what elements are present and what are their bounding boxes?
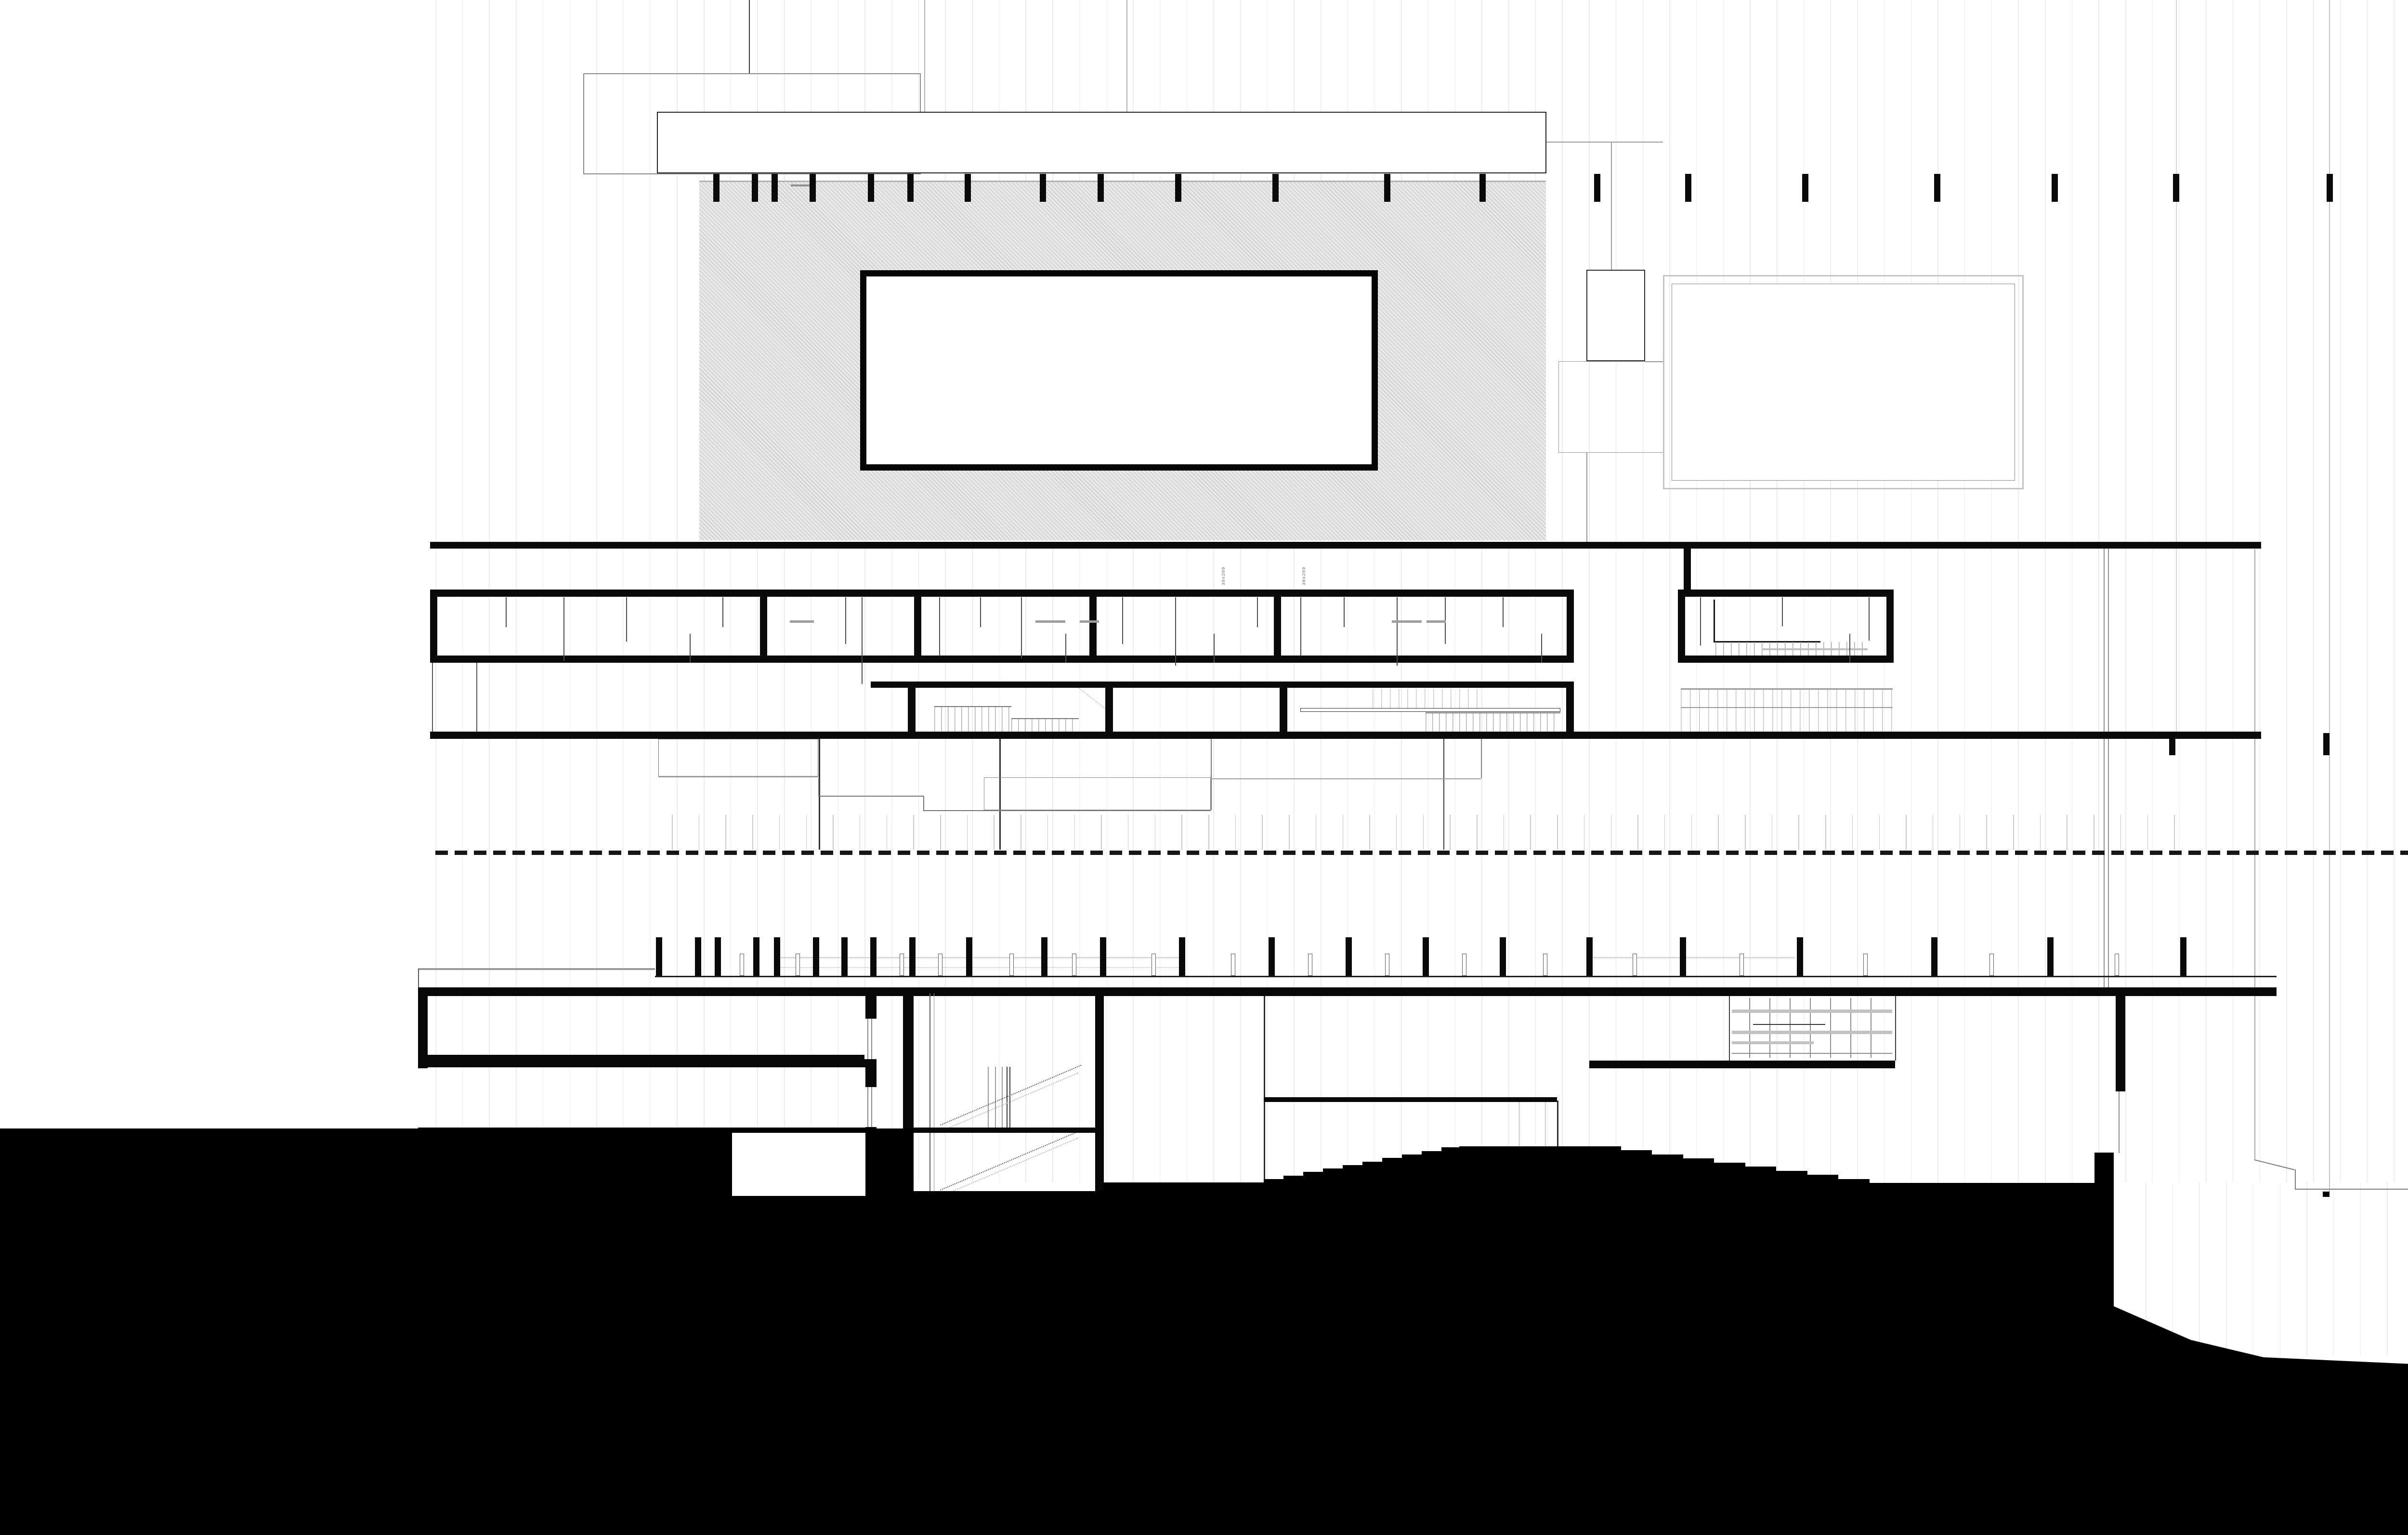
window-mullion <box>740 954 744 976</box>
grid-line <box>1616 0 1617 1182</box>
reference-line <box>2104 549 2105 987</box>
beam-label: 30x200 <box>1302 556 1310 585</box>
underslab-line <box>923 796 924 810</box>
window-mullion <box>938 954 942 976</box>
door-swing-arc <box>1078 688 1105 709</box>
rail-dotted <box>777 967 1182 968</box>
lower-column-tick <box>1100 937 1106 976</box>
shelf-dash <box>1392 620 1422 623</box>
dropline-fringe <box>1933 815 1934 850</box>
dropline-fringe <box>1504 815 1505 850</box>
dropline-fringe <box>1021 815 1021 850</box>
lower-column-tick <box>753 937 759 976</box>
gridroom-mullion <box>1830 998 1831 1058</box>
roof-column-tick <box>1594 174 1600 202</box>
underslab-line <box>923 810 1211 811</box>
window-mullion <box>796 954 800 976</box>
dropline-fringe <box>1530 815 1531 850</box>
bench-bar <box>1300 708 1560 712</box>
ground-mass <box>1104 1182 1264 1535</box>
reference-line <box>1126 0 1127 112</box>
roof-column-tick <box>752 174 758 202</box>
dropline-fringe <box>699 815 700 850</box>
dropline-fringe <box>1611 815 1612 850</box>
roof-column-tick <box>1040 174 1046 202</box>
partition-dropline <box>690 634 691 663</box>
stair-landing <box>908 1128 1095 1133</box>
partition-dropline <box>1175 597 1176 666</box>
dropline-fringe <box>1718 815 1719 850</box>
stair-flight <box>945 1073 1078 1130</box>
band-right-stub-tick <box>2323 733 2329 755</box>
ground-block <box>2094 1153 2114 1535</box>
underslab-line <box>818 777 819 796</box>
underslab-line <box>818 796 923 797</box>
lower-column-tick <box>656 937 662 976</box>
gridroom-mullion <box>1850 998 1851 1058</box>
bay-floor-slab <box>1264 1097 1557 1102</box>
mezz-roof-line <box>871 682 1574 688</box>
lower-column-tick <box>1041 937 1047 976</box>
dropline-fringe <box>833 815 834 850</box>
grid-line <box>2152 0 2153 1182</box>
partition-dropline <box>1503 597 1504 627</box>
mezz-stair-hatch <box>934 706 1011 732</box>
band-right-stub-tick <box>2169 733 2175 755</box>
dropline-fringe <box>752 815 753 850</box>
roof-column-tick <box>2052 174 2058 202</box>
gridroom-mullion <box>1769 998 1770 1058</box>
upper-roof-post <box>1684 549 1691 590</box>
window-mullion <box>900 954 904 976</box>
soil-step-down <box>1621 1150 1652 1535</box>
mezz-wall <box>1566 682 1574 739</box>
dropline-fringe <box>1128 815 1129 850</box>
window-mullion <box>1072 954 1076 976</box>
dropline-fringe <box>1664 815 1665 850</box>
roofplan-step-line <box>749 0 750 73</box>
partition-dropline <box>939 597 940 656</box>
mezz-wall <box>908 682 916 739</box>
dropline-fringe <box>725 815 726 850</box>
grid-line <box>2286 0 2287 1182</box>
lower-column-tick <box>1797 937 1803 976</box>
dropline-fringe <box>779 815 780 850</box>
soil-step-down <box>1838 1179 1870 1535</box>
reference-line <box>924 0 925 112</box>
soil-step-down <box>1714 1163 1745 1535</box>
partition-dropline <box>1541 634 1542 663</box>
partition-dropline <box>1344 597 1345 627</box>
shelf-dash <box>790 620 814 623</box>
grid-line-lower-right <box>2333 1182 2334 1356</box>
door-leaf <box>871 1019 872 1059</box>
upper-wall <box>914 590 921 663</box>
partition-dropline <box>862 597 863 684</box>
connector-line <box>1645 361 1663 362</box>
stairwell-line <box>929 993 930 1191</box>
lower-column-tick <box>715 937 721 976</box>
dropline-fringe <box>672 815 673 850</box>
gridroom-mullion <box>1749 998 1750 1058</box>
dropline-fringe <box>1557 815 1558 850</box>
balustrade <box>995 1067 996 1128</box>
dropline-fringe <box>2174 815 2175 850</box>
dropline-fringe <box>1477 815 1478 850</box>
partition-dropline <box>722 597 723 627</box>
grid-line <box>1991 0 1992 1182</box>
partition-dropline <box>845 597 846 644</box>
lower-column-tick <box>870 937 877 976</box>
soil-step-down <box>1869 1183 1901 1535</box>
window-mullion <box>1740 954 1744 976</box>
dropline-fringe <box>994 815 995 850</box>
roof-column-tick <box>810 174 816 202</box>
grid-line-lower-right <box>2199 1182 2200 1356</box>
dropline-fringe <box>1181 815 1182 850</box>
dropline-fringe <box>806 815 807 850</box>
grid-line-lower-right <box>2387 1182 2388 1356</box>
stair-flight <box>940 1065 1082 1126</box>
dropline-fringe <box>860 815 861 850</box>
soil-step-down <box>1651 1155 1683 1535</box>
balustrade <box>1009 1067 1010 1128</box>
rooftop-unit-small <box>1586 270 1645 361</box>
dropline-fringe <box>1101 815 1102 850</box>
right-wall-thin <box>2119 1091 2120 1153</box>
gridroom-shelf <box>1732 1053 1892 1054</box>
dropline-fringe <box>1852 815 1853 850</box>
soil-step-up <box>1382 1158 1402 1535</box>
lower-column-tick <box>1179 937 1185 976</box>
ground-mass <box>1898 1183 2094 1535</box>
roof-column-tick <box>2327 174 2333 202</box>
mezz-wall <box>1280 682 1287 739</box>
lower-column-tick <box>1423 937 1429 976</box>
lower-column-tick <box>2180 937 2186 976</box>
roof-column-tick <box>907 174 914 202</box>
balustrade <box>1002 1067 1003 1128</box>
lower-column-tick <box>695 937 701 976</box>
mezz-stair-hatch <box>1011 718 1079 732</box>
gridroom-mullion <box>1810 998 1811 1058</box>
upper-roof-slab <box>430 542 2261 549</box>
grid-line-lower-right <box>2172 1182 2173 1356</box>
upper-wall <box>1274 590 1281 663</box>
partition-dropline <box>1700 597 1701 645</box>
roof-column-tick <box>1384 174 1390 202</box>
reference-line <box>2108 549 2109 987</box>
lower-column-tick <box>1269 937 1275 976</box>
grid-line <box>2206 0 2207 1182</box>
datum-dash-row <box>435 851 2408 855</box>
dropline-fringe <box>1235 815 1236 850</box>
grid-line <box>2018 0 2019 1182</box>
door-leaf <box>867 1019 868 1059</box>
lower-roof-conn <box>418 969 419 988</box>
gridroom-slab <box>1589 1061 1895 1068</box>
dropline-fringe <box>1745 815 1746 850</box>
stairwell-line <box>934 993 934 1191</box>
dropline-fringe <box>1047 815 1048 850</box>
gridroom-mullion <box>1871 998 1871 1058</box>
dropline-fringe <box>1825 815 1826 850</box>
dropline-fringe <box>1208 815 1209 850</box>
roof-column-tick <box>1479 174 1486 202</box>
window-mullion <box>1385 954 1389 976</box>
grid-line <box>2313 0 2314 1182</box>
partition-dropline <box>1849 634 1850 663</box>
drawing-layer: 30x20030x200 <box>0 0 2408 1535</box>
partition-dropline <box>1782 597 1783 626</box>
soil-step-down <box>1589 1146 1621 1535</box>
dropline-fringe <box>913 815 914 850</box>
window-mullion <box>1543 954 1547 976</box>
stair-room-wall <box>1886 590 1894 663</box>
door-leaf <box>867 1087 868 1127</box>
section-drawing-sheet: 30x20030x200 <box>0 0 2408 1535</box>
partition-dropline <box>626 597 627 642</box>
soil-step-up <box>1441 1147 1462 1535</box>
basement-wall <box>1095 993 1104 1191</box>
grid-line <box>1669 0 1670 1182</box>
roof-column-tick <box>772 174 778 202</box>
upper-wall <box>1567 590 1574 663</box>
window-mullion <box>1989 954 1994 976</box>
soil-step-up <box>1402 1155 1422 1535</box>
roof-column-tick <box>965 174 971 202</box>
grid-line <box>2045 0 2046 1182</box>
band-bottom-slab <box>430 732 2261 739</box>
partition-dropline <box>1065 634 1066 663</box>
soil-step-down <box>1683 1158 1714 1535</box>
lower-column-tick <box>966 937 972 976</box>
shelf-dash <box>1426 620 1446 623</box>
soil-step-down <box>1807 1175 1839 1535</box>
lower-column-tick <box>774 937 780 976</box>
upper-wall <box>430 590 437 663</box>
rooftop-terrace-inner <box>1672 284 2015 481</box>
stair-rail <box>1763 648 1868 650</box>
window-mullion <box>1863 954 1868 976</box>
grid-line <box>2098 0 2099 1182</box>
partition-dropline <box>1214 634 1215 663</box>
dropline-fringe <box>887 815 888 850</box>
door-leaf <box>871 1087 872 1127</box>
ground-floor-slab <box>418 987 2277 996</box>
grid-line <box>2367 0 2368 1182</box>
upper-floor-slab <box>430 590 1574 597</box>
stair-string <box>1714 600 1715 642</box>
dropline-fringe <box>1262 815 1263 850</box>
lower-column-tick <box>1931 937 1937 976</box>
lower-column-tick <box>1680 937 1686 976</box>
thin-wall <box>1557 1101 1558 1149</box>
grid-line <box>1964 0 1965 1182</box>
lower-column-tick <box>2047 937 2054 976</box>
mezz-line <box>432 663 433 732</box>
connector-line <box>1546 142 1663 143</box>
roof-column-tick <box>1685 174 1691 202</box>
dropline-fringe <box>2094 815 2094 850</box>
dropline-fringe <box>1960 815 1961 850</box>
gridroom-shelf <box>1753 1024 1825 1025</box>
hidden-line <box>1519 1102 1519 1148</box>
dropline-fringe <box>1691 815 1692 850</box>
dropline-fringe <box>2040 815 2041 850</box>
grid-line <box>2179 0 2180 1182</box>
grid-line <box>1911 0 1912 1182</box>
wide-stair-hatch <box>1681 690 1893 732</box>
stair-room-slab <box>1678 656 1894 663</box>
dropline-fringe <box>1879 815 1880 850</box>
roof-column-tick <box>1802 174 1808 202</box>
underslab-outline <box>658 739 818 777</box>
dropline-fringe <box>1637 815 1638 850</box>
grid-line <box>1643 0 1644 1182</box>
stair-room-slab <box>1678 590 1894 597</box>
roof-column-tick <box>1272 174 1279 202</box>
underslab-line <box>1481 739 1482 778</box>
dropline-fringe <box>1906 815 1907 850</box>
dropline-fringe <box>1772 815 1773 850</box>
lower-column-tick <box>1346 937 1352 976</box>
shelf-dash <box>1080 620 1099 623</box>
stair-flight <box>940 1130 1082 1191</box>
window-mullion <box>1231 954 1235 976</box>
grid-line-lower-right <box>2226 1182 2227 1356</box>
roof-canopy-bar <box>657 112 1546 173</box>
rooftop-unit-mid <box>1558 361 1663 453</box>
soil-step-up <box>1283 1176 1304 1535</box>
window-mullion <box>1633 954 1637 976</box>
underslab-outline <box>984 777 1211 810</box>
dropline-fringe <box>1986 815 1987 850</box>
dropline-fringe <box>2013 815 2014 850</box>
grid-line-lower-right <box>2280 1182 2281 1356</box>
partition-dropline <box>563 597 564 661</box>
stair-room-wall <box>1678 590 1685 663</box>
soil-step-up <box>1323 1168 1343 1535</box>
reference-line <box>2176 0 2177 732</box>
rail-dotted <box>1589 958 1795 958</box>
grid-line-lower-right <box>2253 1182 2254 1356</box>
mezz-line <box>476 663 477 732</box>
soil-step-down <box>1745 1167 1777 1535</box>
lower-column-tick <box>813 937 819 976</box>
lower-column-tick <box>1586 937 1593 976</box>
dropline-fringe <box>1369 815 1370 850</box>
dropline-fringe <box>1155 815 1156 850</box>
dropline-fringe <box>1423 815 1424 850</box>
roof-column-tick <box>1098 174 1104 202</box>
connector-line <box>1611 142 1612 270</box>
dropline-fringe <box>1343 815 1344 850</box>
partition-dropline <box>1397 597 1398 666</box>
roof-column-tick <box>2173 174 2179 202</box>
gridroom-wall <box>1729 996 1730 1061</box>
dropline-fringe <box>967 815 968 850</box>
grid-line <box>2260 0 2261 1182</box>
roof-column-tick <box>1175 174 1181 202</box>
underslab-line <box>1211 739 1212 810</box>
beam-label: 30x200 <box>1221 556 1230 585</box>
dropline-fringe <box>2067 815 2068 850</box>
roof-column-tick <box>713 174 720 202</box>
dropline-fringe <box>1316 815 1317 850</box>
soil-step-up <box>1422 1151 1442 1535</box>
ground-tick <box>2323 1192 2329 1197</box>
partition-dropline <box>1122 597 1123 644</box>
mezz-wall <box>1105 682 1113 739</box>
skylight-frame <box>860 270 1378 471</box>
partition-dropline <box>980 597 981 627</box>
dropline-fringe <box>940 815 941 850</box>
roof-column-tick <box>868 174 874 202</box>
basement-room-notch <box>732 1133 865 1196</box>
soil-step-up <box>1303 1172 1323 1535</box>
window-mullion <box>1308 954 1312 976</box>
gridroom-wall <box>1895 996 1896 1061</box>
grade-line <box>2295 1169 2296 1189</box>
soil-step-up <box>1362 1162 1383 1535</box>
window-mullion <box>1462 954 1466 976</box>
upper-floor-slab <box>430 656 1574 663</box>
dropline-fringe <box>1289 815 1290 850</box>
grid-line <box>2394 0 2395 1182</box>
reference-line <box>1443 739 1444 850</box>
soil-step-up <box>1264 1179 1284 1535</box>
gridroom-mullion <box>1790 998 1791 1058</box>
dropline-fringe <box>1450 815 1451 850</box>
lower-column-tick <box>1500 937 1506 976</box>
lower-roof-line <box>655 976 2277 977</box>
shelf-dash <box>1035 620 1065 623</box>
roof-column-tick <box>1934 174 1940 202</box>
basement-slab <box>418 1055 877 1067</box>
ground-mass <box>914 1191 1104 1535</box>
partition-dropline <box>506 597 507 627</box>
lower-column-tick <box>841 937 848 976</box>
lower-roof-left <box>418 968 655 970</box>
underslab-edge <box>658 776 818 777</box>
grid-line <box>2233 0 2234 1182</box>
soil-step-down <box>1776 1171 1807 1535</box>
partition-dropline <box>1869 597 1870 641</box>
ground-mass-right <box>2114 1300 2408 1535</box>
rail-dotted <box>777 958 1182 958</box>
grid-line <box>2125 0 2126 1182</box>
soil-mound-top <box>1459 1146 1589 1535</box>
hidden-line <box>1545 1102 1545 1148</box>
dropline-fringe <box>1798 815 1799 850</box>
partition-dropline <box>1257 597 1258 627</box>
rail-hatch <box>1373 689 1479 708</box>
grid-line <box>2340 0 2341 1182</box>
window-mullion <box>2115 954 2119 976</box>
wide-stair-mid <box>1681 707 1893 708</box>
window-mullion <box>1009 954 1014 976</box>
partition-dropline <box>1300 597 1301 656</box>
thin-wall <box>1264 996 1265 1184</box>
grid-line <box>1589 0 1590 1182</box>
partition-dropline <box>1021 597 1022 658</box>
dropline-fringe <box>1584 815 1585 850</box>
soil-step-up <box>1343 1165 1363 1535</box>
upper-wall <box>1089 590 1097 663</box>
gridroom-shelf <box>1732 1010 1892 1013</box>
connector-line <box>1586 453 1587 543</box>
